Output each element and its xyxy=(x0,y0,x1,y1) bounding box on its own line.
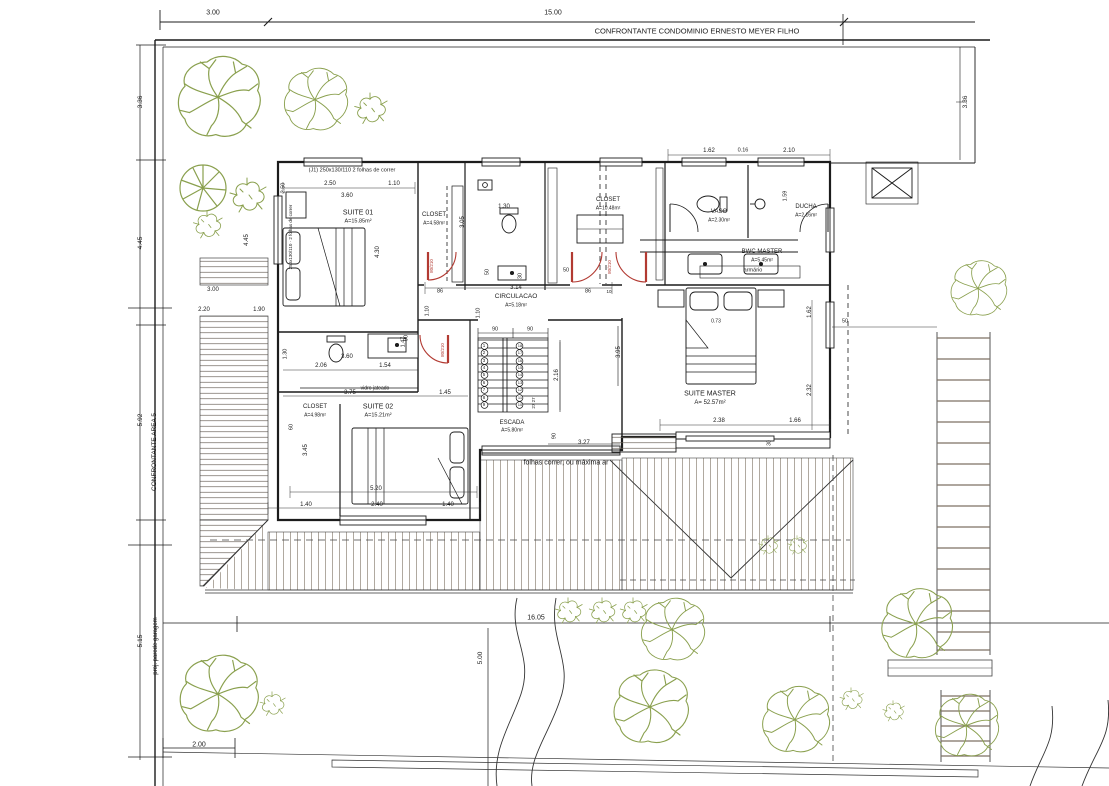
staircase xyxy=(478,326,620,444)
site-boundary xyxy=(128,10,1109,786)
floor-plan-drawing xyxy=(0,0,1109,786)
deck-hatch xyxy=(205,455,855,762)
side-fence xyxy=(888,332,992,762)
garden-path xyxy=(163,598,1109,786)
floor-plan-canvas: 3.0015.00CONFRONTANTE CONDOMINIO ERNESTO… xyxy=(0,0,1109,786)
utility-box xyxy=(866,162,918,204)
door-swings xyxy=(420,204,828,363)
